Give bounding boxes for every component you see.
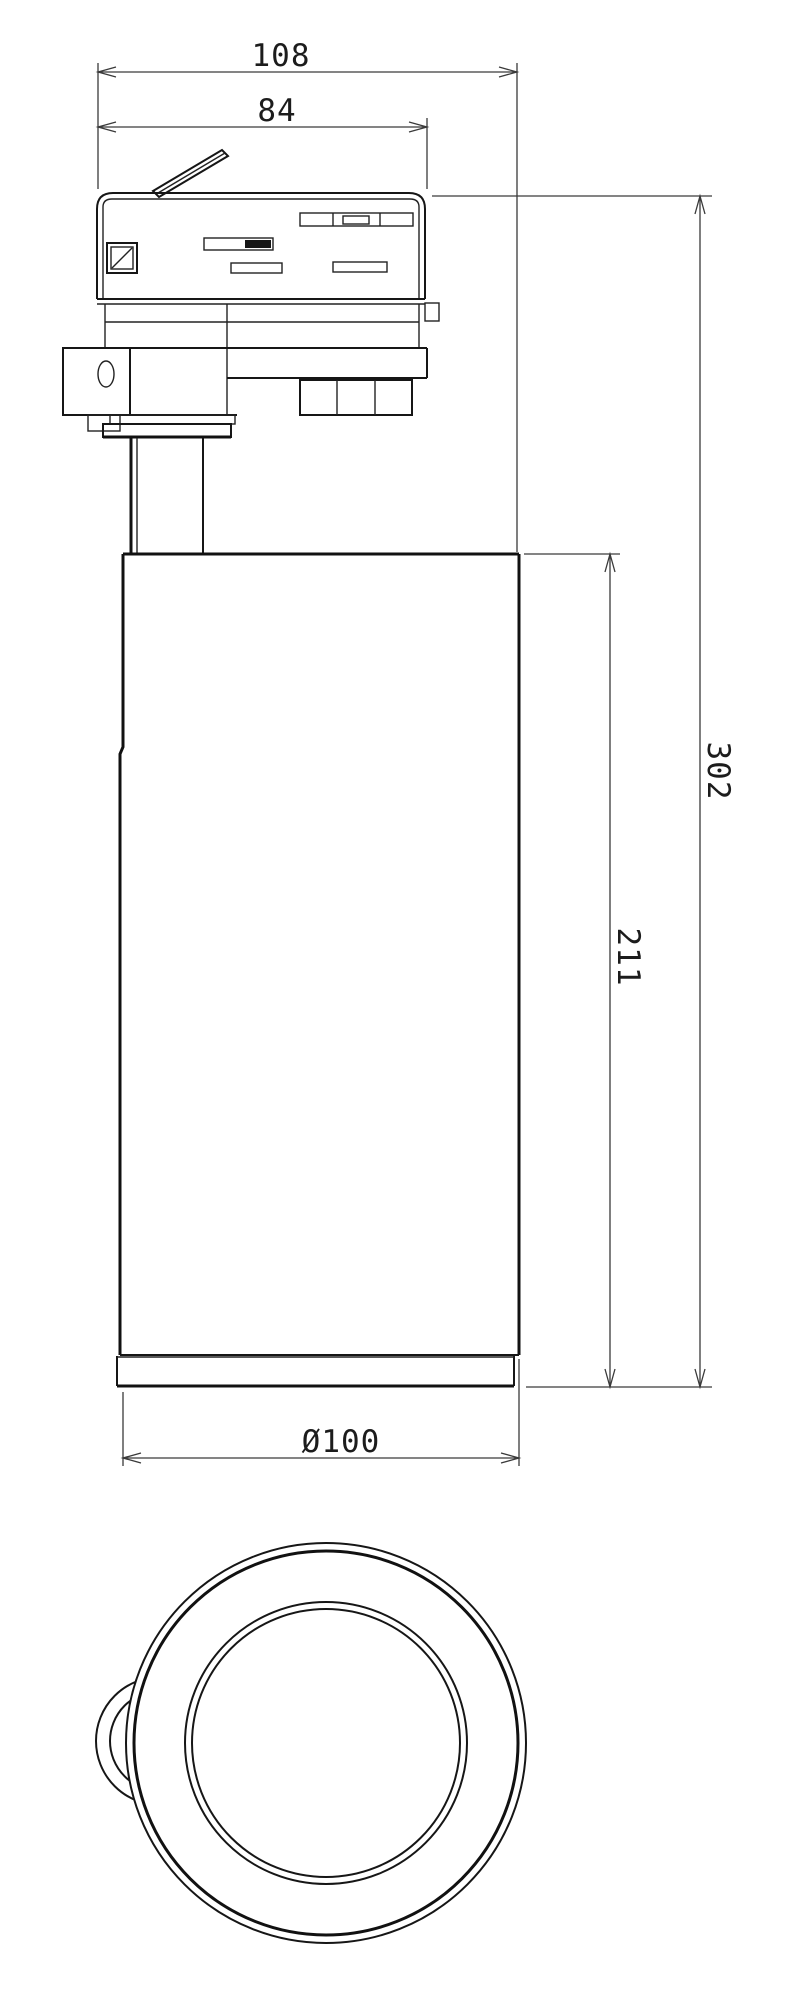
stem	[103, 415, 235, 554]
dimension-body-height: 211	[524, 554, 646, 1387]
terminal-blocks	[300, 380, 412, 415]
dim-diameter-label: Ø100	[302, 1424, 381, 1460]
base-ring	[117, 1356, 514, 1386]
mounting-bracket	[63, 348, 427, 431]
dim-body-height-label: 211	[610, 928, 646, 987]
drawing-svg: 108 84 302 211 Ø100	[0, 0, 798, 2000]
dimension-adapter-width: 84	[98, 93, 427, 189]
housing-cylinder	[120, 554, 519, 1355]
dimension-diameter: Ø100	[123, 1359, 519, 1466]
side-tab	[425, 303, 439, 321]
dim-overall-width-label: 108	[252, 38, 311, 74]
screw-hole	[98, 361, 114, 387]
dimension-overall-height: 302	[432, 196, 736, 1387]
bottom-view	[96, 1543, 526, 1943]
dim-adapter-width-label: 84	[257, 93, 296, 129]
dimension-overall-width: 108	[98, 38, 517, 552]
adapter-collar	[105, 303, 439, 415]
technical-drawing-canvas: 108 84 302 211 Ø100	[0, 0, 798, 2000]
contact-slots	[107, 213, 413, 273]
latch-lever-icon	[153, 150, 228, 197]
dim-overall-height-label: 302	[700, 742, 736, 801]
front-view	[63, 150, 519, 1386]
track-adapter	[97, 193, 425, 304]
